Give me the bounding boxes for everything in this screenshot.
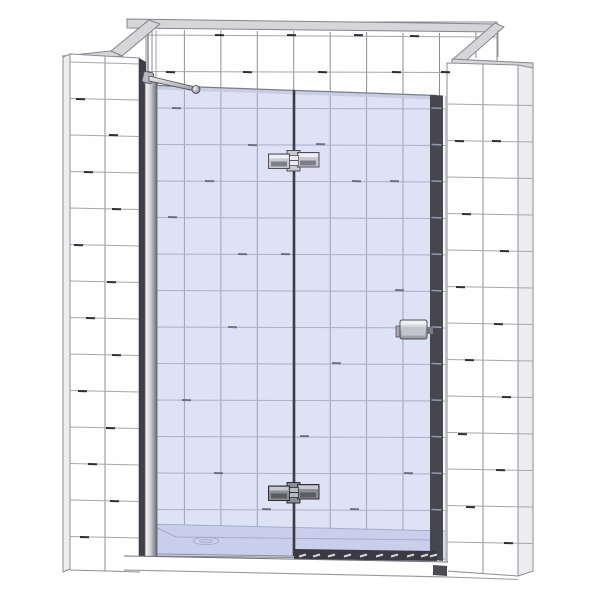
- door-handle: [396, 320, 433, 339]
- wall-profile: [144, 80, 158, 558]
- door-edge-floor-shadow: [433, 565, 447, 576]
- shower-enclosure-render: Frameless hinged glass shower door in a …: [0, 0, 600, 600]
- left-wall: [63, 54, 146, 572]
- support-bar-end-knob: [192, 86, 200, 94]
- right-wall: [447, 63, 533, 576]
